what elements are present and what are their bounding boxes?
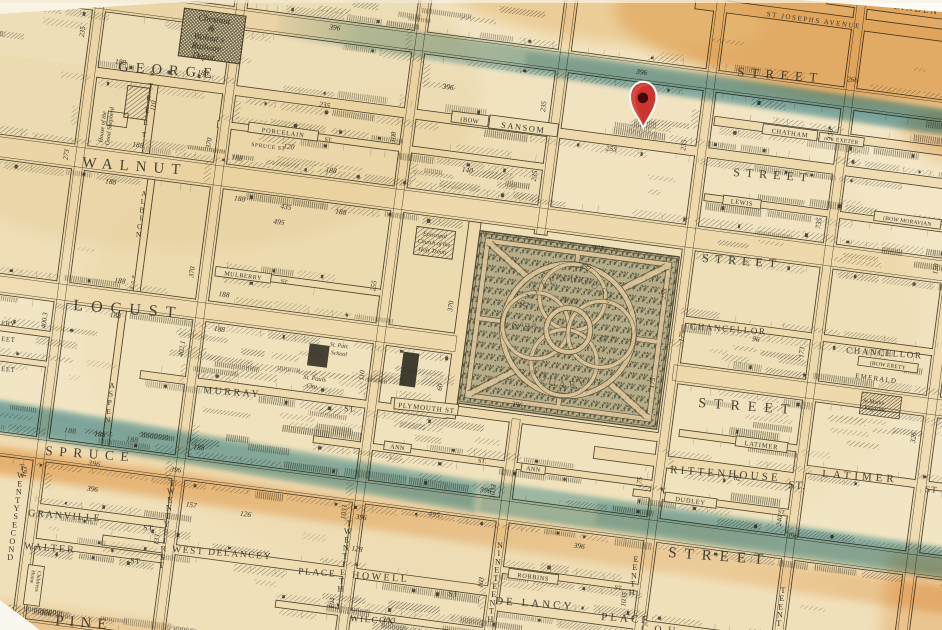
svg-text:H: H (337, 585, 343, 594)
svg-text:ST.: ST. (143, 523, 156, 533)
svg-text:150: 150 (826, 128, 835, 140)
svg-text:D: D (7, 553, 13, 562)
svg-text:ST: ST (925, 484, 938, 495)
svg-text:H: H (487, 615, 493, 624)
svg-text:T: T (159, 561, 164, 570)
svg-text:ST: ST (130, 556, 141, 566)
svg-text:396: 396 (39, 607, 52, 618)
svg-text:H: H (629, 588, 635, 597)
svg-text:326: 326 (909, 431, 919, 444)
svg-text:396: 396 (87, 458, 101, 469)
svg-text:ST: ST (448, 589, 459, 599)
svg-text:T: T (776, 619, 781, 628)
svg-text:EET: EET (1, 335, 16, 344)
svg-text:266: 266 (846, 74, 858, 84)
svg-text:104: 104 (327, 597, 336, 609)
svg-text:EET: EET (1, 365, 16, 374)
svg-text:188: 188 (64, 425, 77, 436)
svg-text:ERY: ERY (1, 320, 16, 328)
svg-text:ST.: ST. (614, 584, 624, 592)
svg-text:150: 150 (931, 263, 940, 275)
